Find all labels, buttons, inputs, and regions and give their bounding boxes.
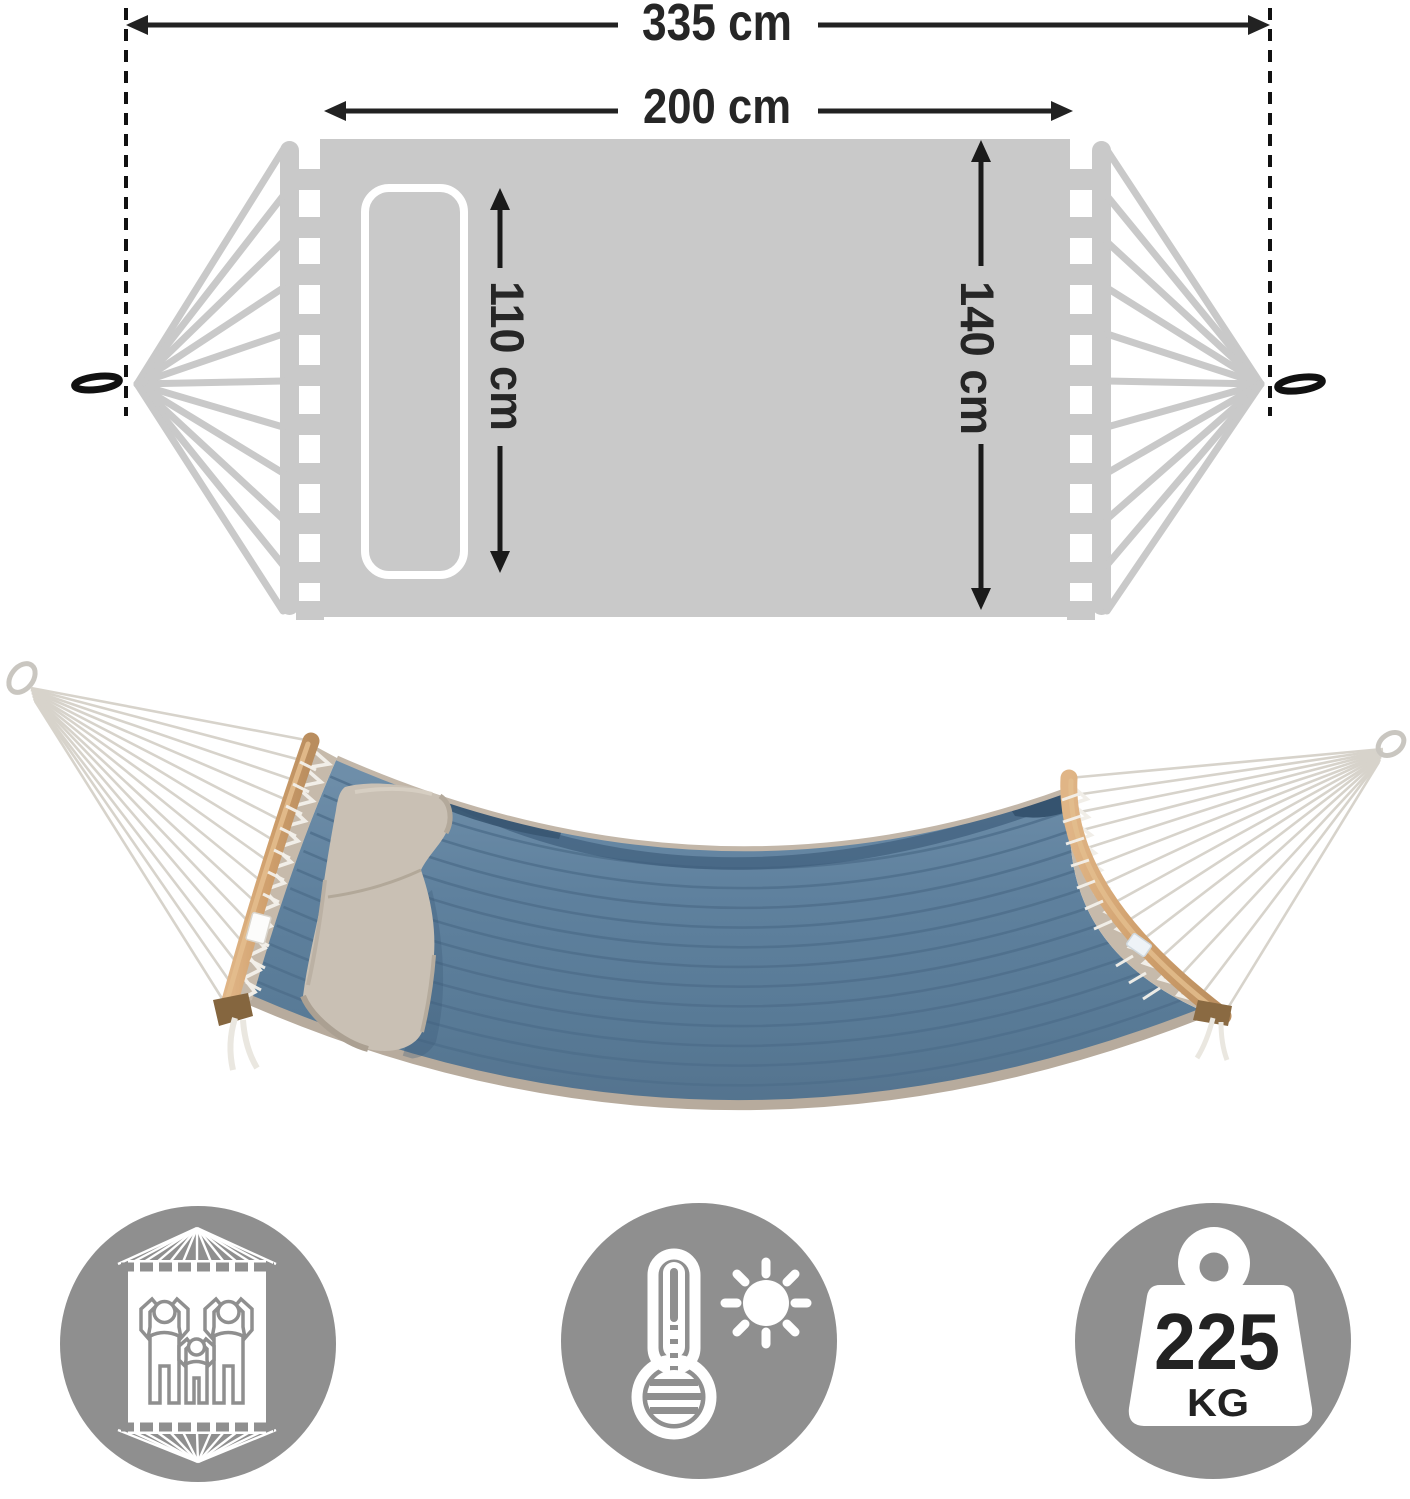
svg-text:KG: KG: [1187, 1382, 1249, 1425]
svg-text:200 cm: 200 cm: [643, 80, 791, 134]
svg-text:140 cm: 140 cm: [951, 281, 1004, 435]
svg-text:335 cm: 335 cm: [642, 0, 792, 52]
svg-text:225: 225: [1154, 1297, 1280, 1386]
svg-text:110 cm: 110 cm: [481, 281, 534, 431]
